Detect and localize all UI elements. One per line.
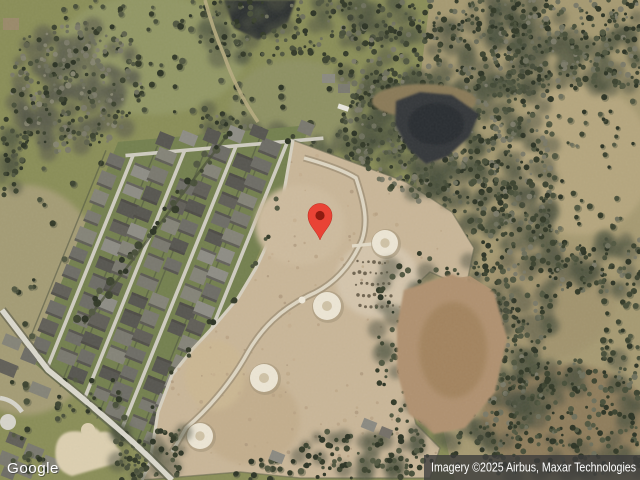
svg-text:Imagery ©2025 Airbus, Maxar Te: Imagery ©2025 Airbus, Maxar Technologies	[431, 460, 636, 475]
svg-text:Google: Google	[7, 460, 59, 477]
